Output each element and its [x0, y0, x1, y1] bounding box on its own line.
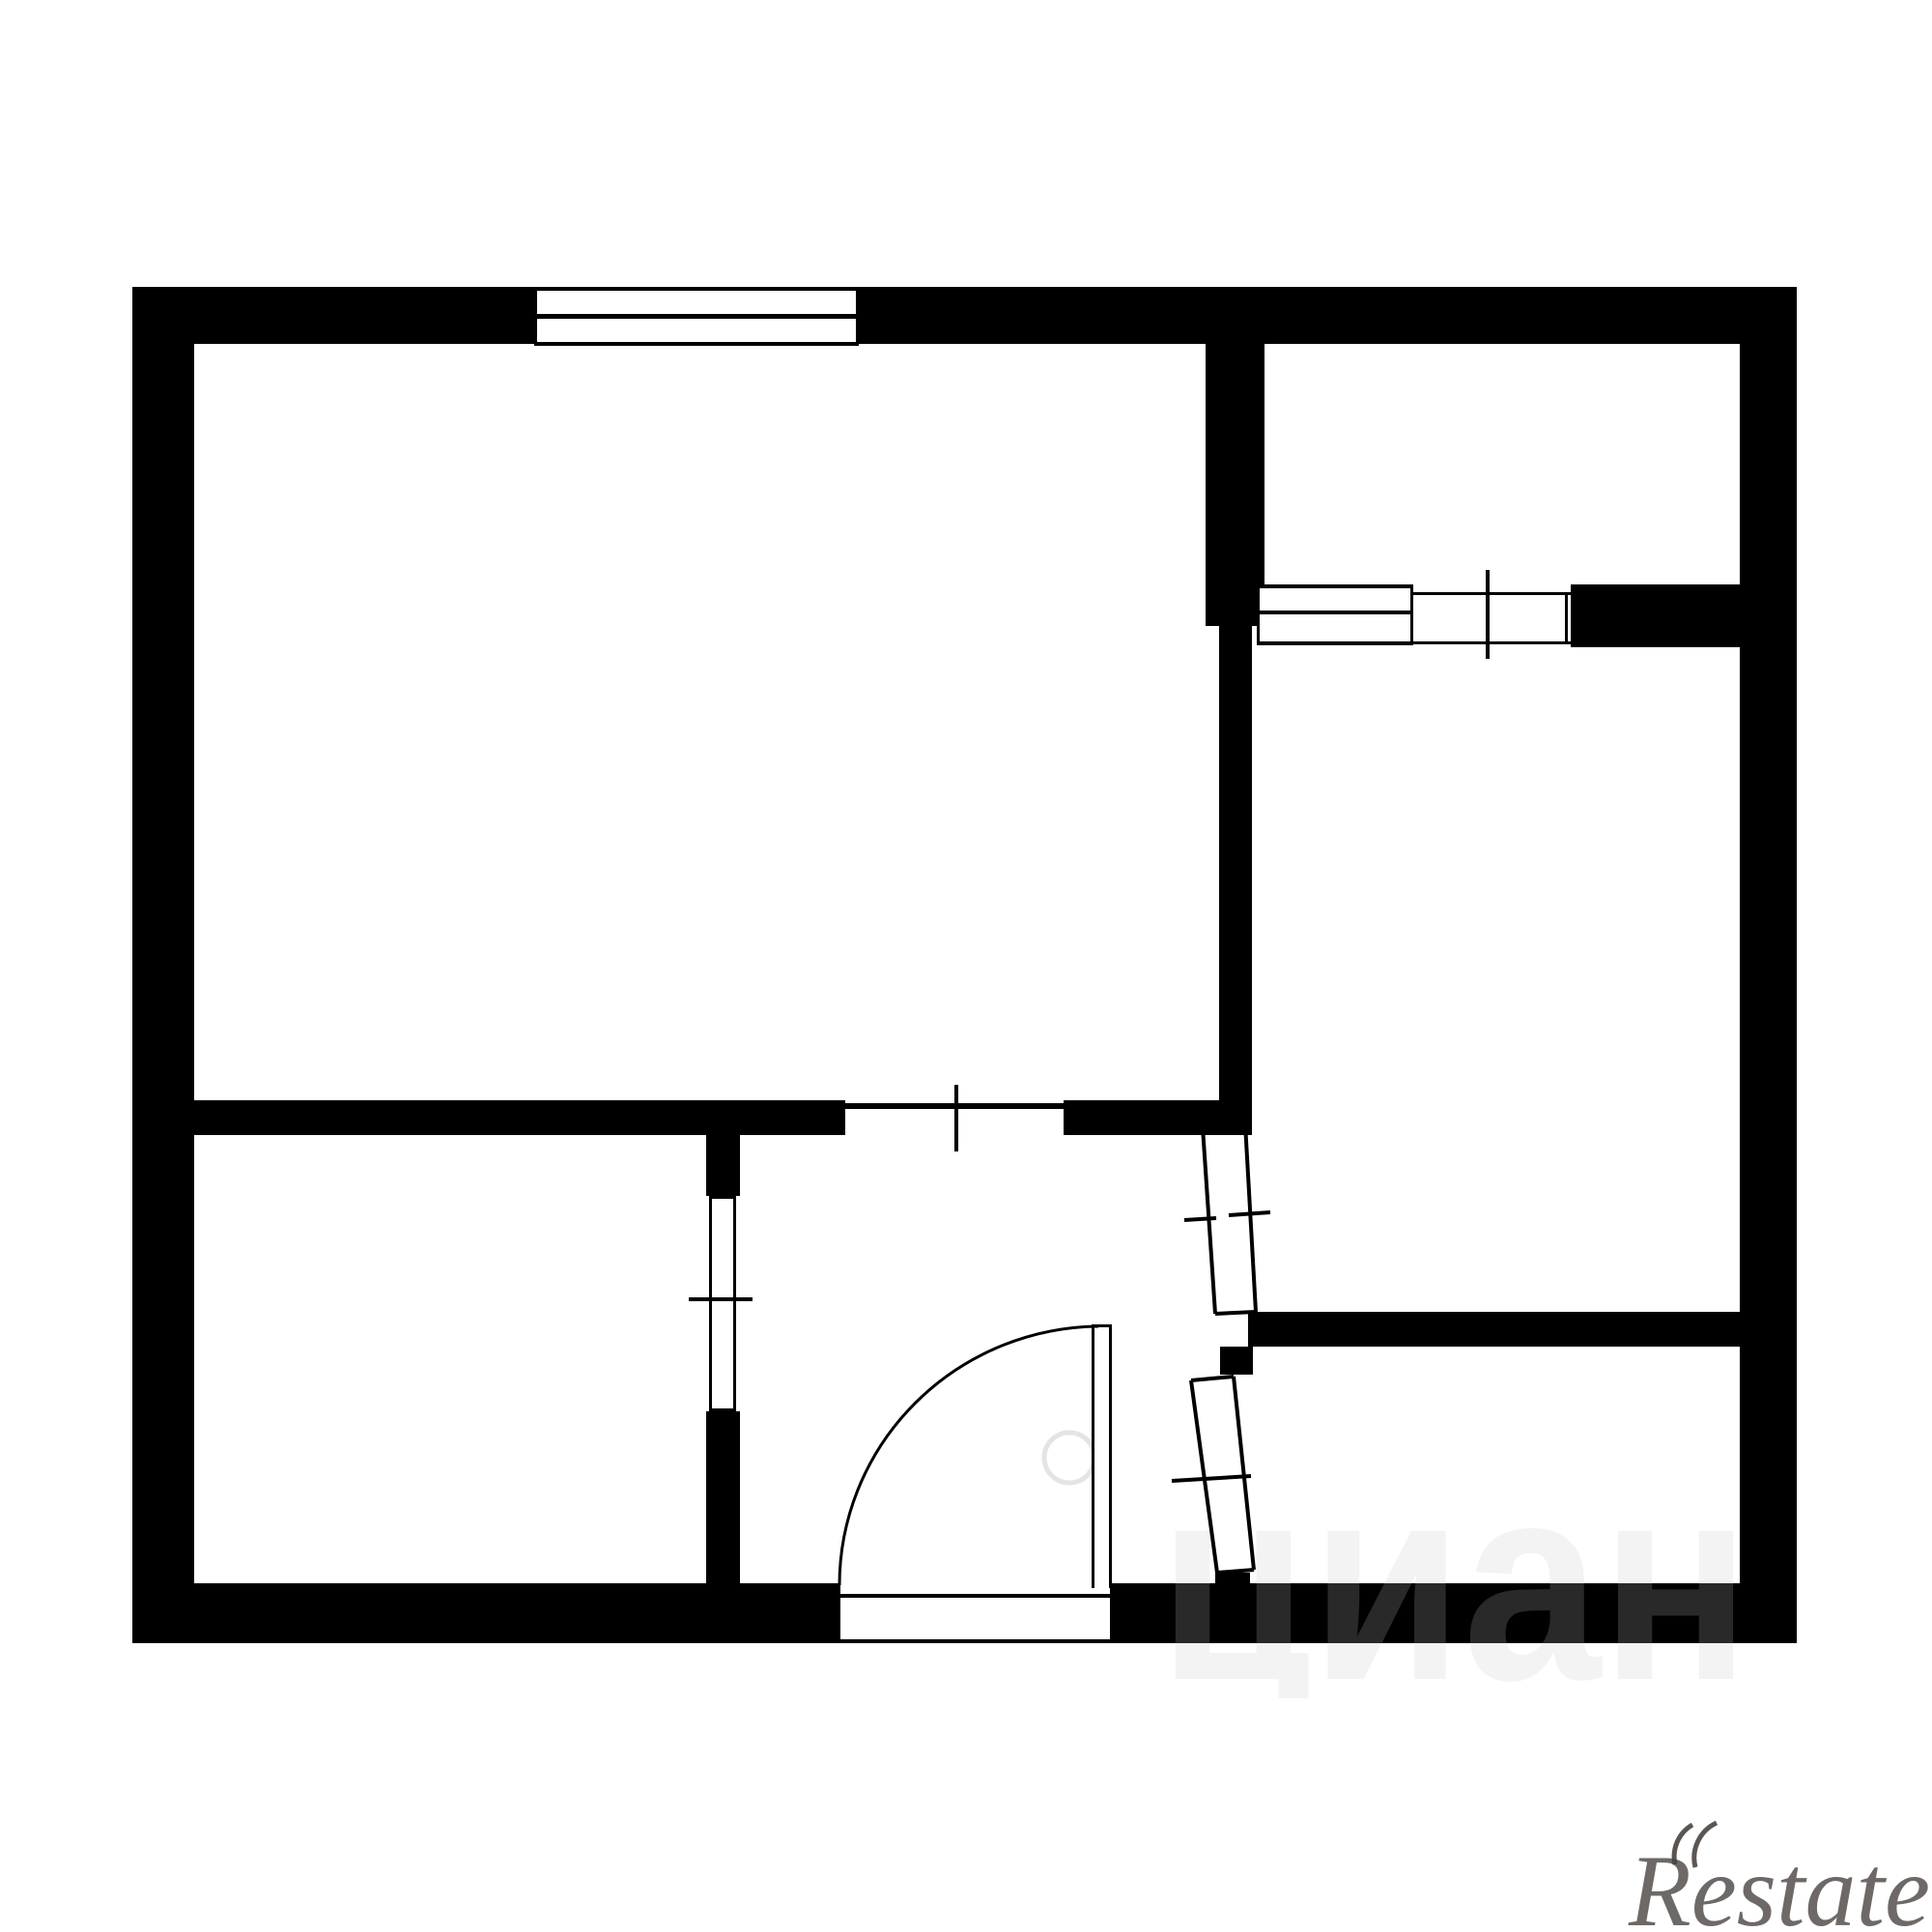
svg-text:Restate: Restate — [1628, 1834, 1930, 1932]
